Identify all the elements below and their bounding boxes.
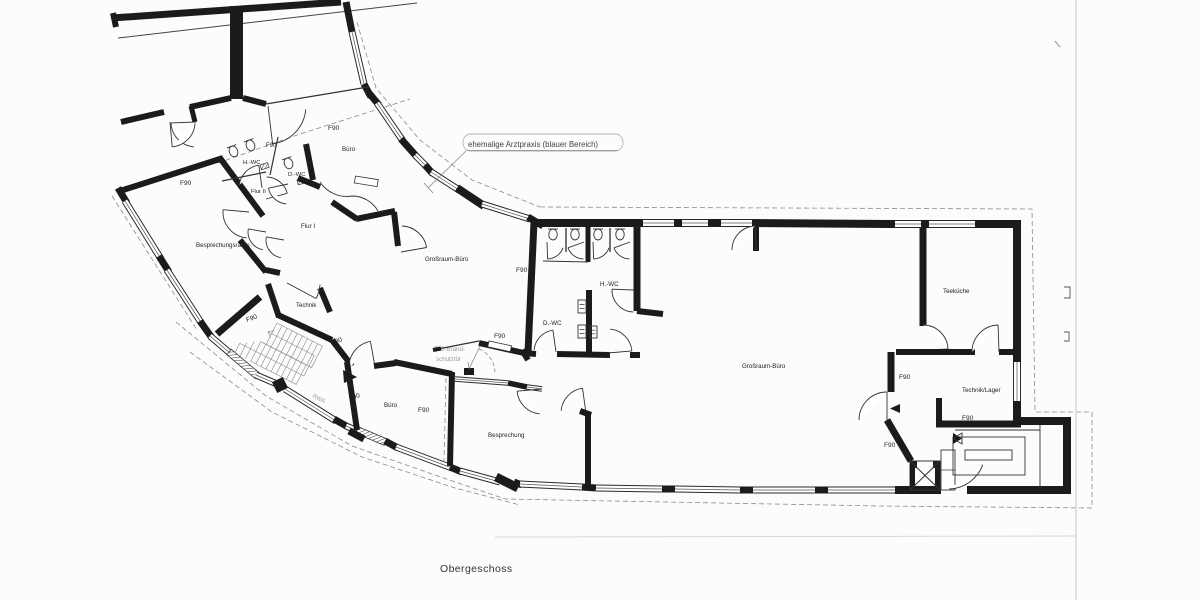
- svg-text:F90: F90: [418, 407, 430, 414]
- svg-text:H.-WC: H.-WC: [600, 281, 619, 288]
- svg-text:Büro: Büro: [342, 146, 356, 153]
- svg-text:Großraum-Büro: Großraum-Büro: [742, 363, 786, 370]
- svg-text:F90: F90: [516, 267, 528, 274]
- svg-text:Technik: Technik: [296, 303, 317, 309]
- svg-text:Technik/Lager: Technik/Lager: [962, 387, 1001, 394]
- svg-text:F90: F90: [494, 333, 506, 340]
- svg-text:Obergeschoss: Obergeschoss: [440, 563, 513, 575]
- svg-text:Teeküche: Teeküche: [943, 288, 970, 295]
- svg-text:D.-WC: D.-WC: [543, 320, 562, 327]
- svg-text:F90: F90: [962, 415, 974, 422]
- svg-text:F90: F90: [328, 125, 340, 132]
- svg-text:Großraum-Büro: Großraum-Büro: [425, 256, 469, 263]
- svg-text:F90: F90: [884, 442, 896, 449]
- svg-text:ehemalige Arztpraxis (blauer B: ehemalige Arztpraxis (blauer Bereich): [468, 140, 598, 149]
- svg-text:F90: F90: [180, 180, 192, 187]
- svg-text:schutztür: schutztür: [436, 356, 461, 363]
- svg-text:Flur II: Flur II: [251, 189, 266, 195]
- svg-text:Besprechung: Besprechung: [488, 432, 525, 439]
- svg-text:Flur I: Flur I: [301, 223, 315, 230]
- svg-text:Büro: Büro: [384, 402, 398, 409]
- svg-text:F90: F90: [899, 374, 911, 381]
- svg-text:Besprechungsraum: Besprechungsraum: [196, 242, 250, 249]
